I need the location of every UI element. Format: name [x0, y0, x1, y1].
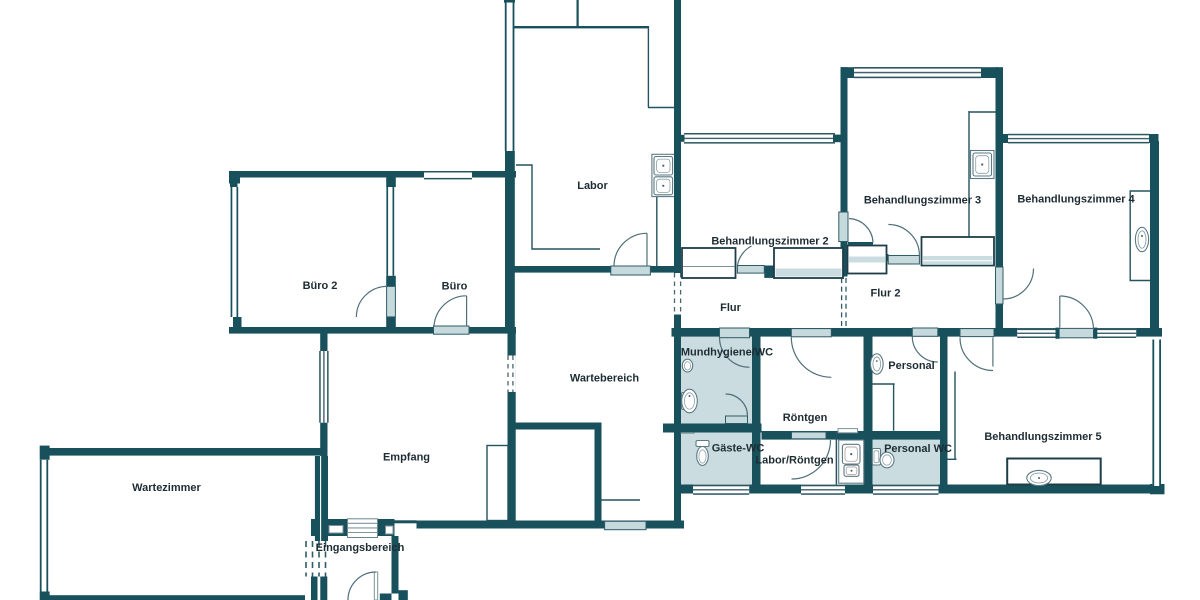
svg-text:Empfang: Empfang — [383, 452, 430, 464]
svg-text:Behandlungszimmer 2: Behandlungszimmer 2 — [711, 236, 828, 248]
svg-text:Röntgen: Röntgen — [783, 412, 828, 424]
svg-text:Wartezimmer: Wartezimmer — [132, 482, 201, 494]
svg-text:Eingangsbereich: Eingangsbereich — [316, 542, 405, 554]
svg-text:Wartebereich: Wartebereich — [570, 373, 640, 385]
svg-text:Labor/Röntgen: Labor/Röntgen — [755, 455, 833, 467]
svg-text:Büro 2: Büro 2 — [303, 280, 338, 292]
svg-text:Behandlungszimmer 3: Behandlungszimmer 3 — [864, 195, 981, 207]
svg-text:Gäste-WC: Gäste-WC — [712, 443, 765, 455]
svg-text:Flur 2: Flur 2 — [871, 288, 901, 300]
svg-text:Flur: Flur — [720, 302, 741, 314]
svg-text:Personal WC: Personal WC — [884, 443, 952, 455]
svg-text:Büro: Büro — [442, 281, 468, 293]
svg-text:Mundhygiene/WC: Mundhygiene/WC — [681, 347, 773, 359]
svg-text:Behandlungszimmer 5: Behandlungszimmer 5 — [984, 431, 1101, 443]
svg-text:Labor: Labor — [577, 180, 608, 192]
svg-text:Personal: Personal — [888, 360, 934, 372]
svg-text:Behandlungszimmer 4: Behandlungszimmer 4 — [1017, 194, 1135, 206]
